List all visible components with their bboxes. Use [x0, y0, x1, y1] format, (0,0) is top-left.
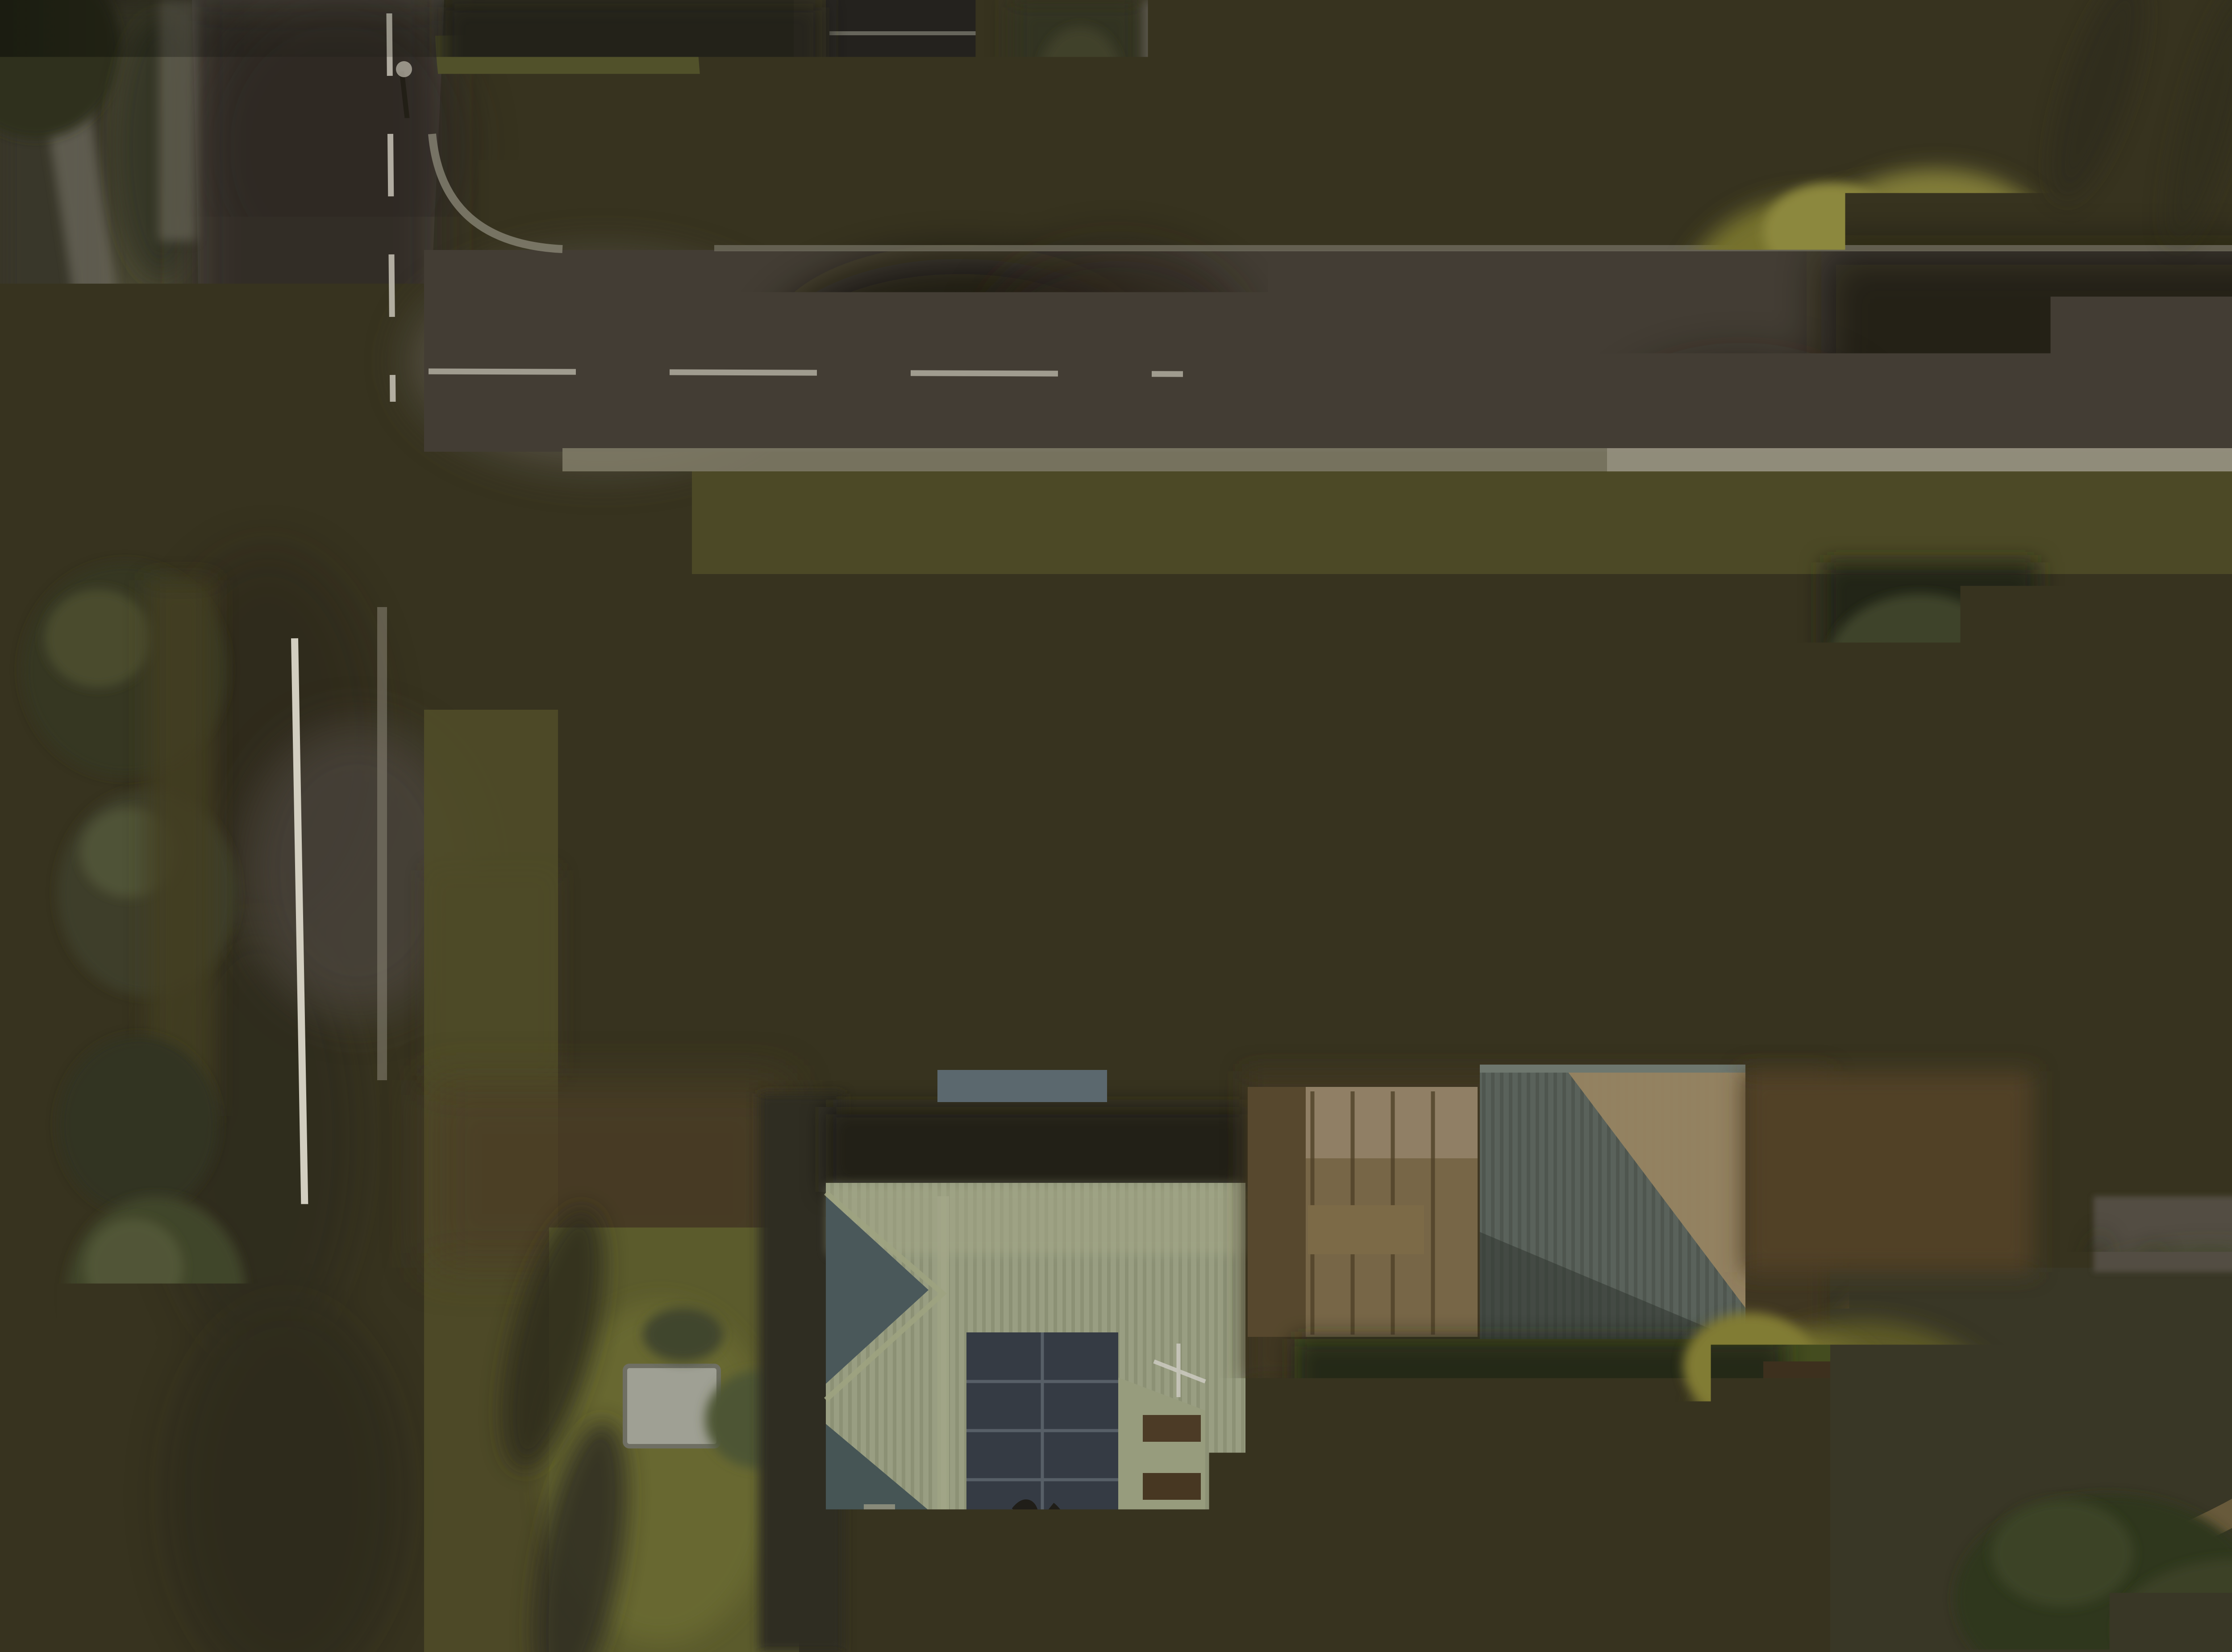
svg-text:18.3m: 18.3m [237, 816, 498, 925]
svg-text:44.5m: 44.5m [1046, 404, 1323, 514]
svg-text:eview: eview [2225, 1496, 2232, 1625]
svg-text:47.6m: 47.6m [1033, 1135, 1312, 1260]
svg-text:REAL ESTATE: REAL ESTATE [2228, 1619, 2232, 1638]
svg-text:m2: m2 [1288, 713, 1443, 831]
svg-text:approx: approx [1054, 821, 1372, 945]
svg-text:807: 807 [927, 643, 1278, 847]
svg-text:17.1m: 17.1m [1874, 790, 2115, 901]
